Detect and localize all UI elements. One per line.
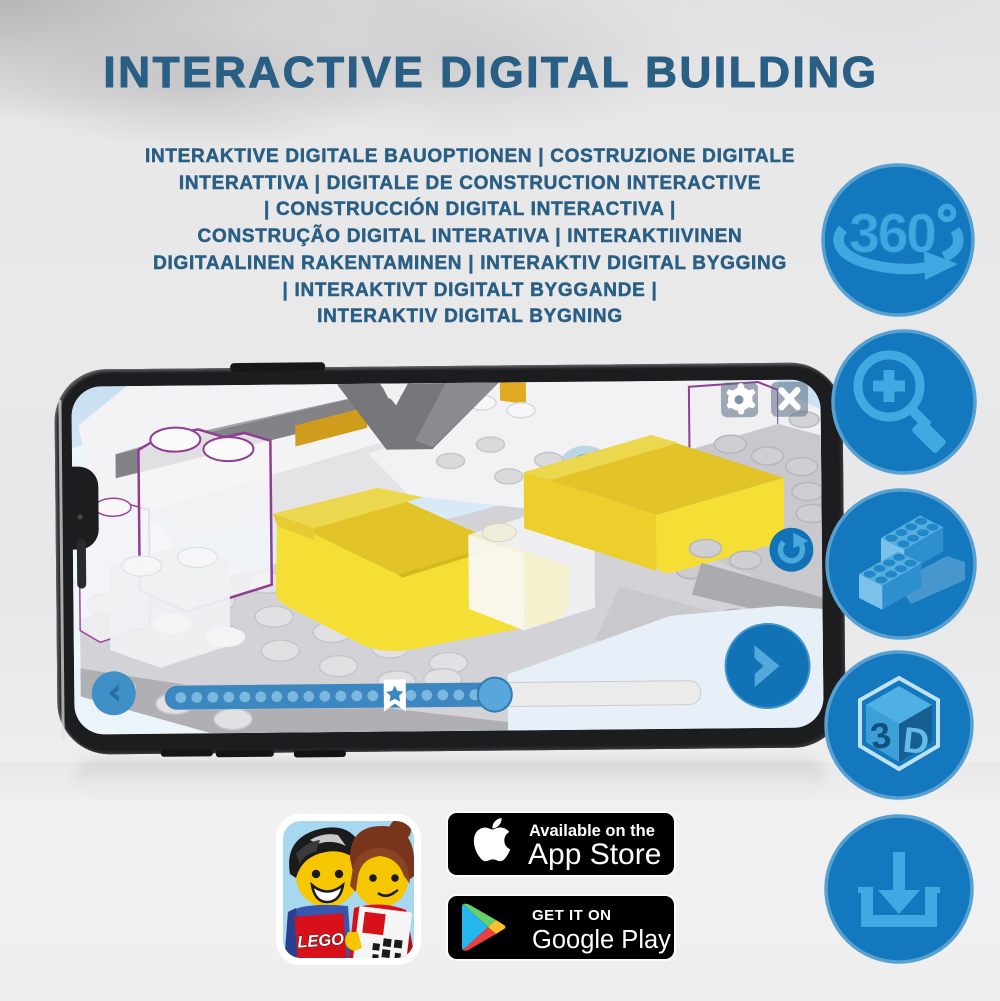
svg-text:LEGO: LEGO — [297, 930, 345, 951]
svg-text:360: 360 — [849, 202, 935, 264]
svg-text:App Store: App Store — [528, 838, 661, 871]
svg-text:GET IT ON: GET IT ON — [532, 907, 612, 924]
svg-text:D: D — [901, 719, 931, 762]
svg-text:Google Play: Google Play — [532, 926, 671, 954]
